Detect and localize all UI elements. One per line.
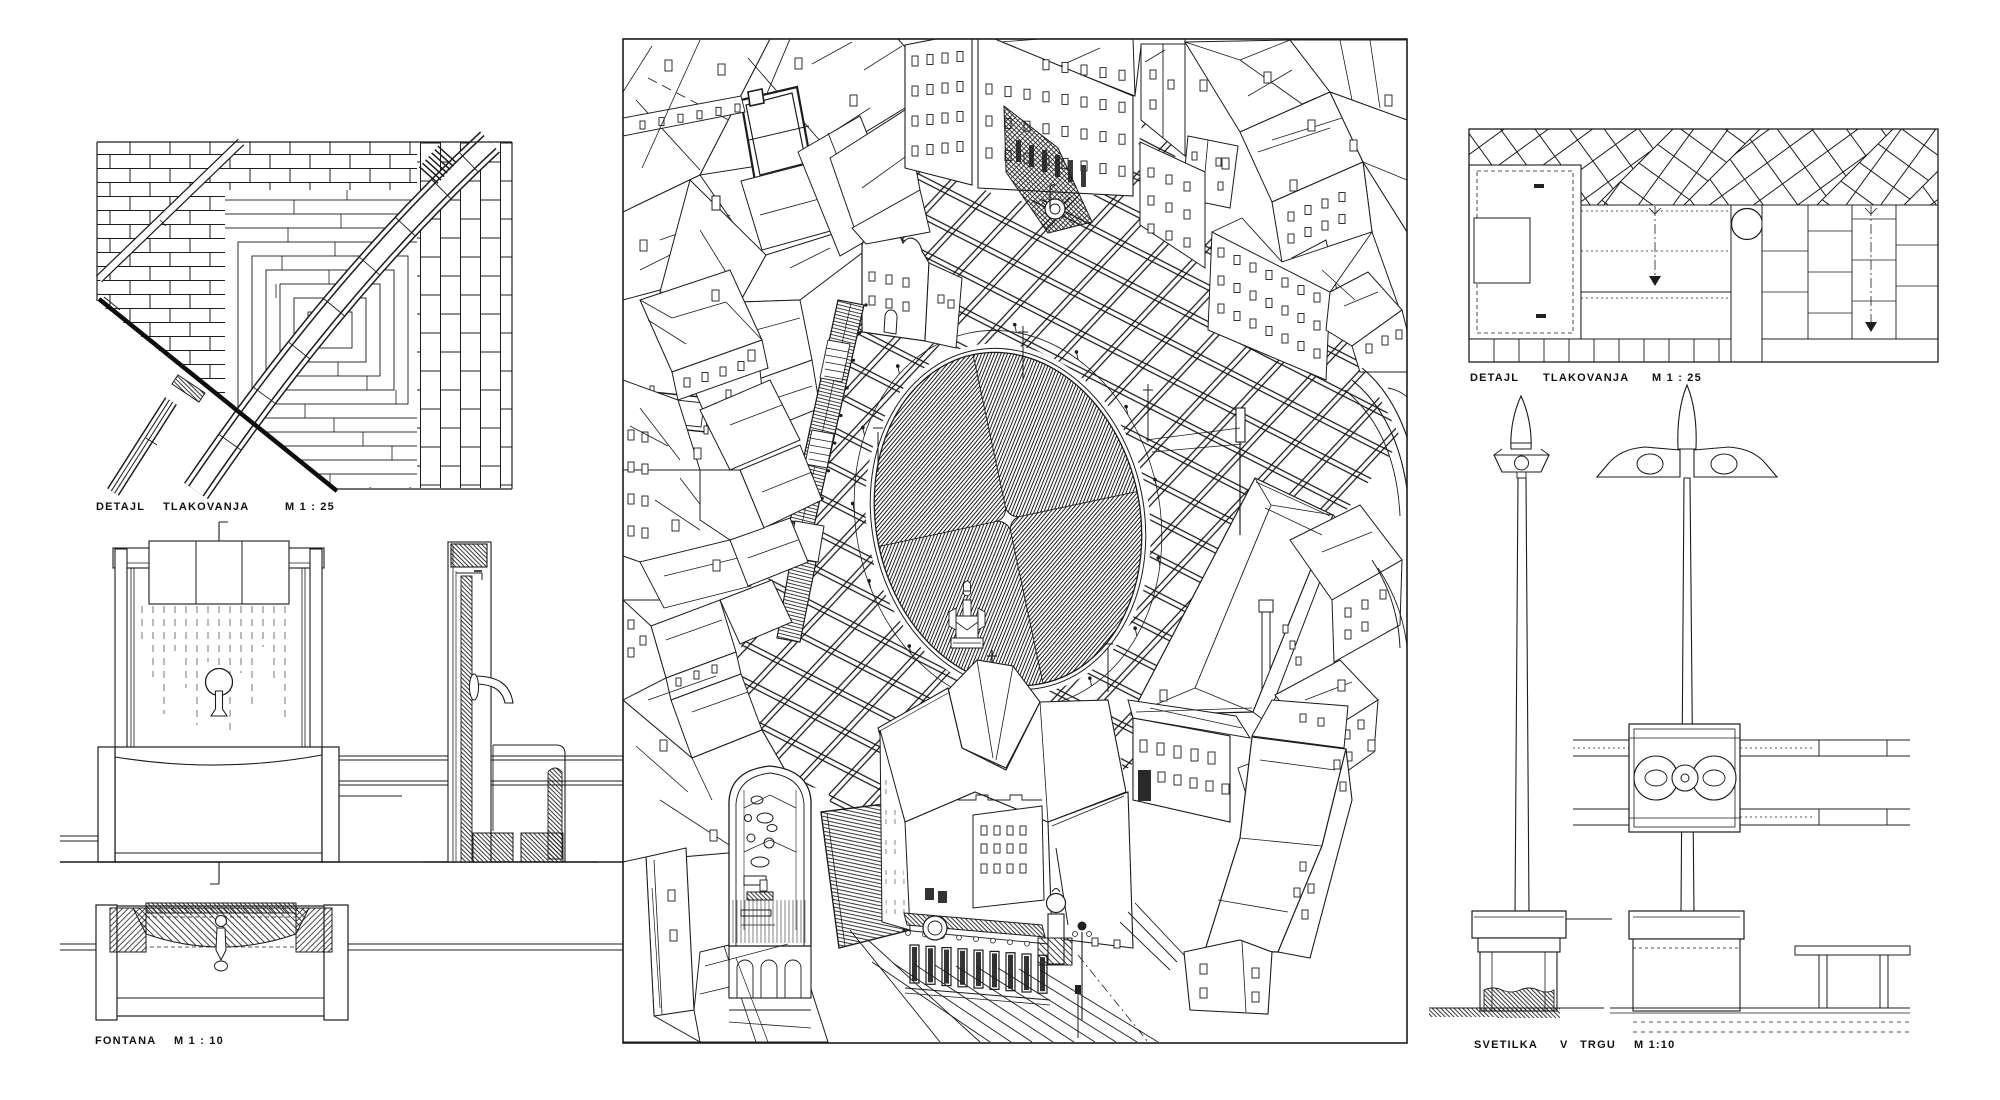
svg-text:DETAJL: DETAJL: [1470, 372, 1519, 384]
svg-text:TLAKOVANJA: TLAKOVANJA: [1543, 372, 1629, 384]
svg-text:M 1 : 25: M 1 : 25: [285, 501, 335, 513]
svg-text:M 1 : 25: M 1 : 25: [1652, 372, 1702, 384]
svg-text:DETAJL: DETAJL: [96, 501, 145, 513]
svg-text:FONTANA: FONTANA: [95, 1035, 156, 1047]
svg-text:TLAKOVANJA: TLAKOVANJA: [163, 501, 249, 513]
svg-text:TRGU: TRGU: [1580, 1039, 1616, 1051]
svg-text:M 1 : 10: M 1 : 10: [174, 1035, 224, 1047]
svg-text:SVETILKA: SVETILKA: [1474, 1039, 1538, 1051]
svg-text:V: V: [1560, 1039, 1569, 1051]
svg-text:M 1:10: M 1:10: [1634, 1039, 1675, 1051]
